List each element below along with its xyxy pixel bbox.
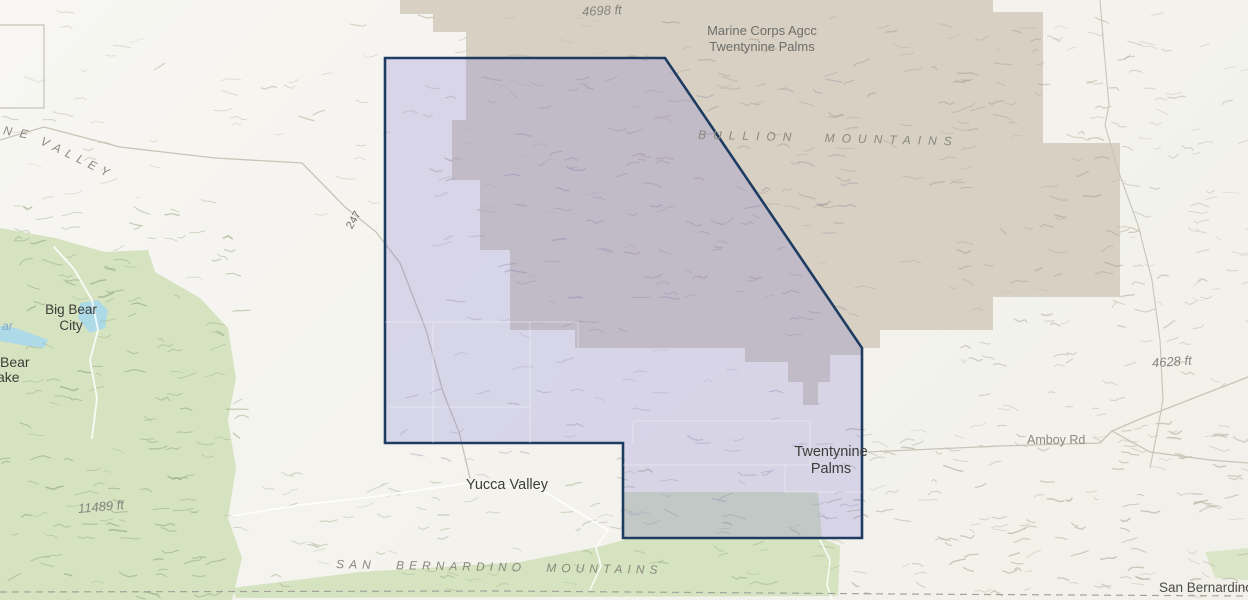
boundary-grid-lines <box>0 25 44 108</box>
yucca-valley-label: Yucca Valley <box>466 477 548 494</box>
lake-label-fragment-line2: ake <box>0 369 20 385</box>
elevation-label-4698: 4698 ft <box>582 3 622 20</box>
san-bernardino-county-label: San Bernardino <box>1159 580 1248 596</box>
marine-base-label: Marine Corps Agcc Twentynine Palms <box>697 23 827 55</box>
water-label-fragment: ar <box>2 320 13 334</box>
big-bear-city-label-line1: Big Bear <box>45 302 97 317</box>
twentynine-palms-label-line1: Twentynine <box>794 444 867 460</box>
marine-base-label-line1: Marine Corps Agcc <box>707 23 817 38</box>
amboy-rd-label: Amboy Rd <box>1027 433 1085 447</box>
marine-base-label-line2: Twentynine Palms <box>709 39 815 54</box>
big-bear-city-label: Big Bear City <box>26 302 116 333</box>
big-bear-city-label-line2: City <box>59 318 82 333</box>
elevation-label-4628: 4628 ft <box>1152 354 1193 372</box>
map-canvas[interactable]: 4698 ft Marine Corps Agcc Twentynine Pal… <box>0 0 1248 600</box>
forest-area-west <box>0 228 242 600</box>
basemap-layer <box>0 0 1248 600</box>
lake-label-fragment-line1: Bear <box>0 354 30 370</box>
twentynine-palms-label: Twentynine Palms <box>781 444 881 477</box>
twentynine-palms-label-line2: Palms <box>811 461 851 477</box>
road-hwy62-line <box>232 483 608 530</box>
